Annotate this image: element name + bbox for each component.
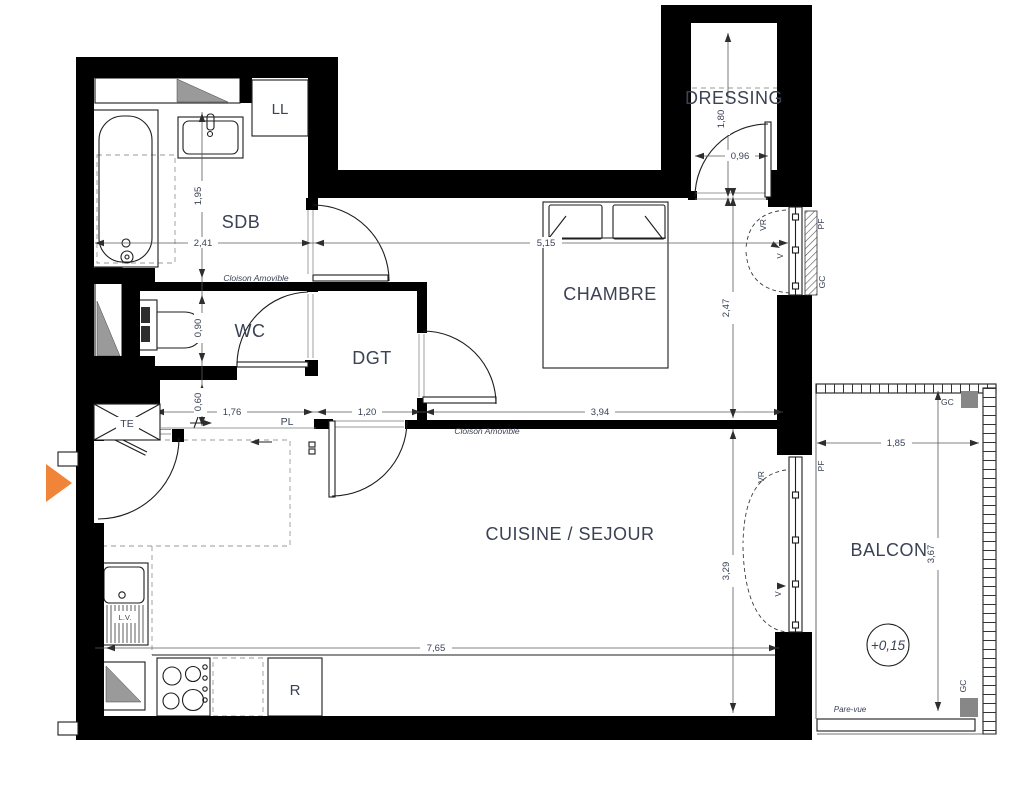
entrance-marker-arrow [46, 464, 72, 502]
gc-label-balcon-top: GC [941, 397, 954, 407]
facade-ledge-upper [58, 452, 78, 466]
dishwasher-label: L.V. [119, 613, 132, 622]
chambre-window [746, 207, 817, 295]
sejour-window [743, 457, 802, 632]
guardrail-post-bottom [960, 698, 978, 717]
dim-balcon-depth: 3,67 [926, 545, 937, 564]
dim-dressing-door: 0,96 [731, 151, 750, 162]
pare-vue-panel [817, 719, 975, 731]
dim-chambre-south-width: 3,94 [591, 407, 610, 418]
balcony-railing-right [983, 388, 996, 734]
dim-dressing-depth: 1,80 [716, 110, 727, 129]
floor-plan-drawing: L.V. R [0, 0, 1021, 800]
walls [76, 5, 812, 740]
closet-label: PL [281, 416, 294, 428]
room-label-chambre: CHAMBRE [563, 284, 657, 304]
v-label-sejour: V [774, 591, 783, 597]
room-label-sdb: SDB [222, 212, 261, 232]
duct-kitchen [102, 662, 145, 710]
pf-label-chambre: PF [816, 219, 826, 230]
guardrail-post-top [961, 391, 978, 408]
chambre-door [419, 331, 496, 404]
vr-label-sejour: VR [756, 471, 766, 483]
cooktop [157, 658, 210, 716]
duct-top-wall [95, 78, 240, 103]
gc-label-chambre: GC [817, 276, 827, 289]
dim-sdb-depth: 1,95 [193, 187, 204, 206]
entry-door [98, 428, 180, 519]
dim-chambre-width: 5,15 [537, 238, 556, 249]
gc-label-balcon-bottom: GC [958, 680, 968, 693]
level-marker-label: +0,15 [871, 638, 906, 653]
dim-dgt-width: 1,20 [358, 407, 377, 418]
washing-machine-label: LL [272, 101, 289, 118]
dim-entry-width: 1,76 [223, 407, 242, 418]
partition-label-sdb: Cloison Amovible [223, 273, 289, 283]
dim-sejour-width: 7,65 [427, 643, 446, 654]
room-label-balcon: BALCON [850, 540, 927, 560]
pare-vue-label: Pare-vue [834, 705, 867, 714]
dim-entry-depth: 0,60 [193, 393, 204, 412]
room-label-dgt: DGT [352, 348, 392, 368]
vr-label-chambre: VR [758, 219, 768, 231]
floor-plan-page: L.V. R [0, 0, 1021, 800]
room-label-cuisine-sejour: CUISINE / SEJOUR [485, 524, 654, 544]
electrical-panel-label: TE [120, 418, 133, 430]
bathroom-sink [178, 114, 243, 158]
dim-chambre-depth: 2,47 [721, 299, 732, 318]
dim-wc-depth: 0,90 [193, 319, 204, 338]
dim-sejour-depth: 3,29 [721, 562, 732, 581]
kitchen-sink-dishwasher: L.V. [100, 563, 148, 645]
fridge-label: R [290, 682, 301, 699]
partition-label-sejour: Cloison Amovible [454, 426, 520, 436]
room-label-dressing: DRESSING [685, 88, 783, 108]
v-label-chambre: V [776, 253, 785, 259]
pf-label-balcon: PF [816, 461, 826, 472]
fridge-box: R [268, 658, 322, 716]
sejour-door [309, 421, 407, 497]
facade-ledge-lower [58, 722, 78, 735]
dim-balcon-width: 1,85 [887, 438, 906, 449]
room-label-wc: WC [235, 321, 266, 341]
dim-sdb-width: 2,41 [194, 238, 213, 249]
